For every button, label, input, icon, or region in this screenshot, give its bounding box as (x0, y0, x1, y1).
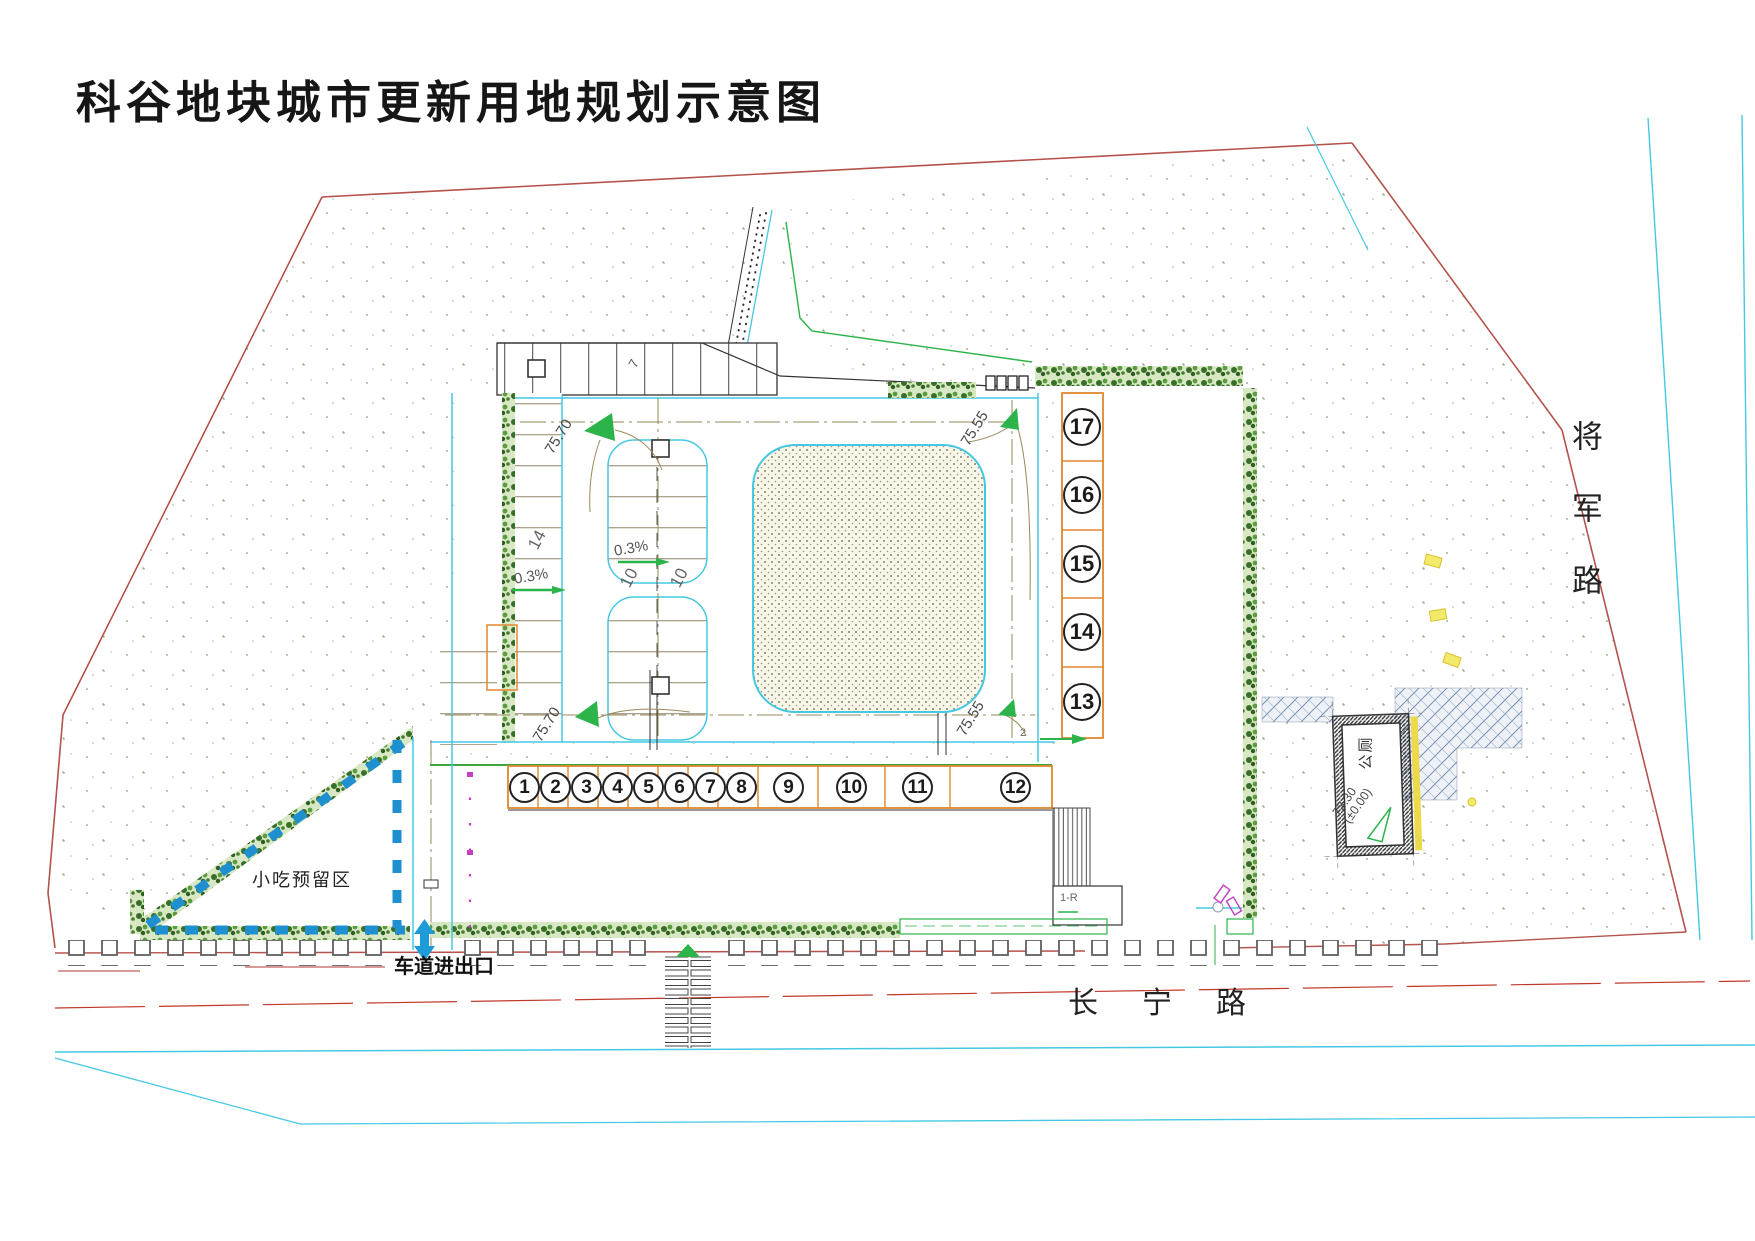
plan-linework (0, 0, 1755, 1241)
unit-4: 4 (602, 772, 633, 803)
unit-1: 1 (509, 772, 540, 803)
driveway-entrance-label: 车道进出口 (394, 950, 494, 979)
unit-14: 14 (1063, 613, 1101, 651)
crosswalk (665, 944, 711, 1048)
unit-7: 7 (695, 772, 726, 803)
unit-3: 3 (571, 772, 602, 803)
page-title: 科谷地块城市更新用地规划示意图 (76, 66, 826, 131)
misc-mark: 2 (1020, 727, 1026, 739)
unit-8: 8 (726, 772, 757, 803)
unit-2: 2 (540, 772, 571, 803)
unit-9: 9 (773, 772, 804, 803)
unit-17: 17 (1063, 408, 1101, 446)
unit-10: 10 (836, 772, 867, 803)
road-label-changning: 长宁路 (1068, 978, 1290, 1022)
central-court (753, 445, 985, 712)
stair-label: 1-R (1060, 892, 1078, 904)
road-label-jiangjun: 将军路 (1562, 420, 1607, 636)
driveway (413, 737, 452, 950)
unit-11: 11 (902, 772, 933, 803)
unit-12: 12 (1000, 772, 1031, 803)
site-plan: 科谷地块城市更新用地规划示意图 小吃预留区 车道进出口 长宁路 将军路 75.7… (0, 0, 1755, 1241)
unit-13: 13 (1063, 683, 1101, 721)
snack-area-label: 小吃预留区 (252, 866, 352, 892)
toilet-label: 公厕 (1355, 735, 1376, 769)
unit-6: 6 (664, 772, 695, 803)
street-trees (58, 940, 1445, 966)
unit-5: 5 (633, 772, 664, 803)
unit-16: 16 (1063, 476, 1101, 514)
unit-15: 15 (1063, 545, 1101, 583)
